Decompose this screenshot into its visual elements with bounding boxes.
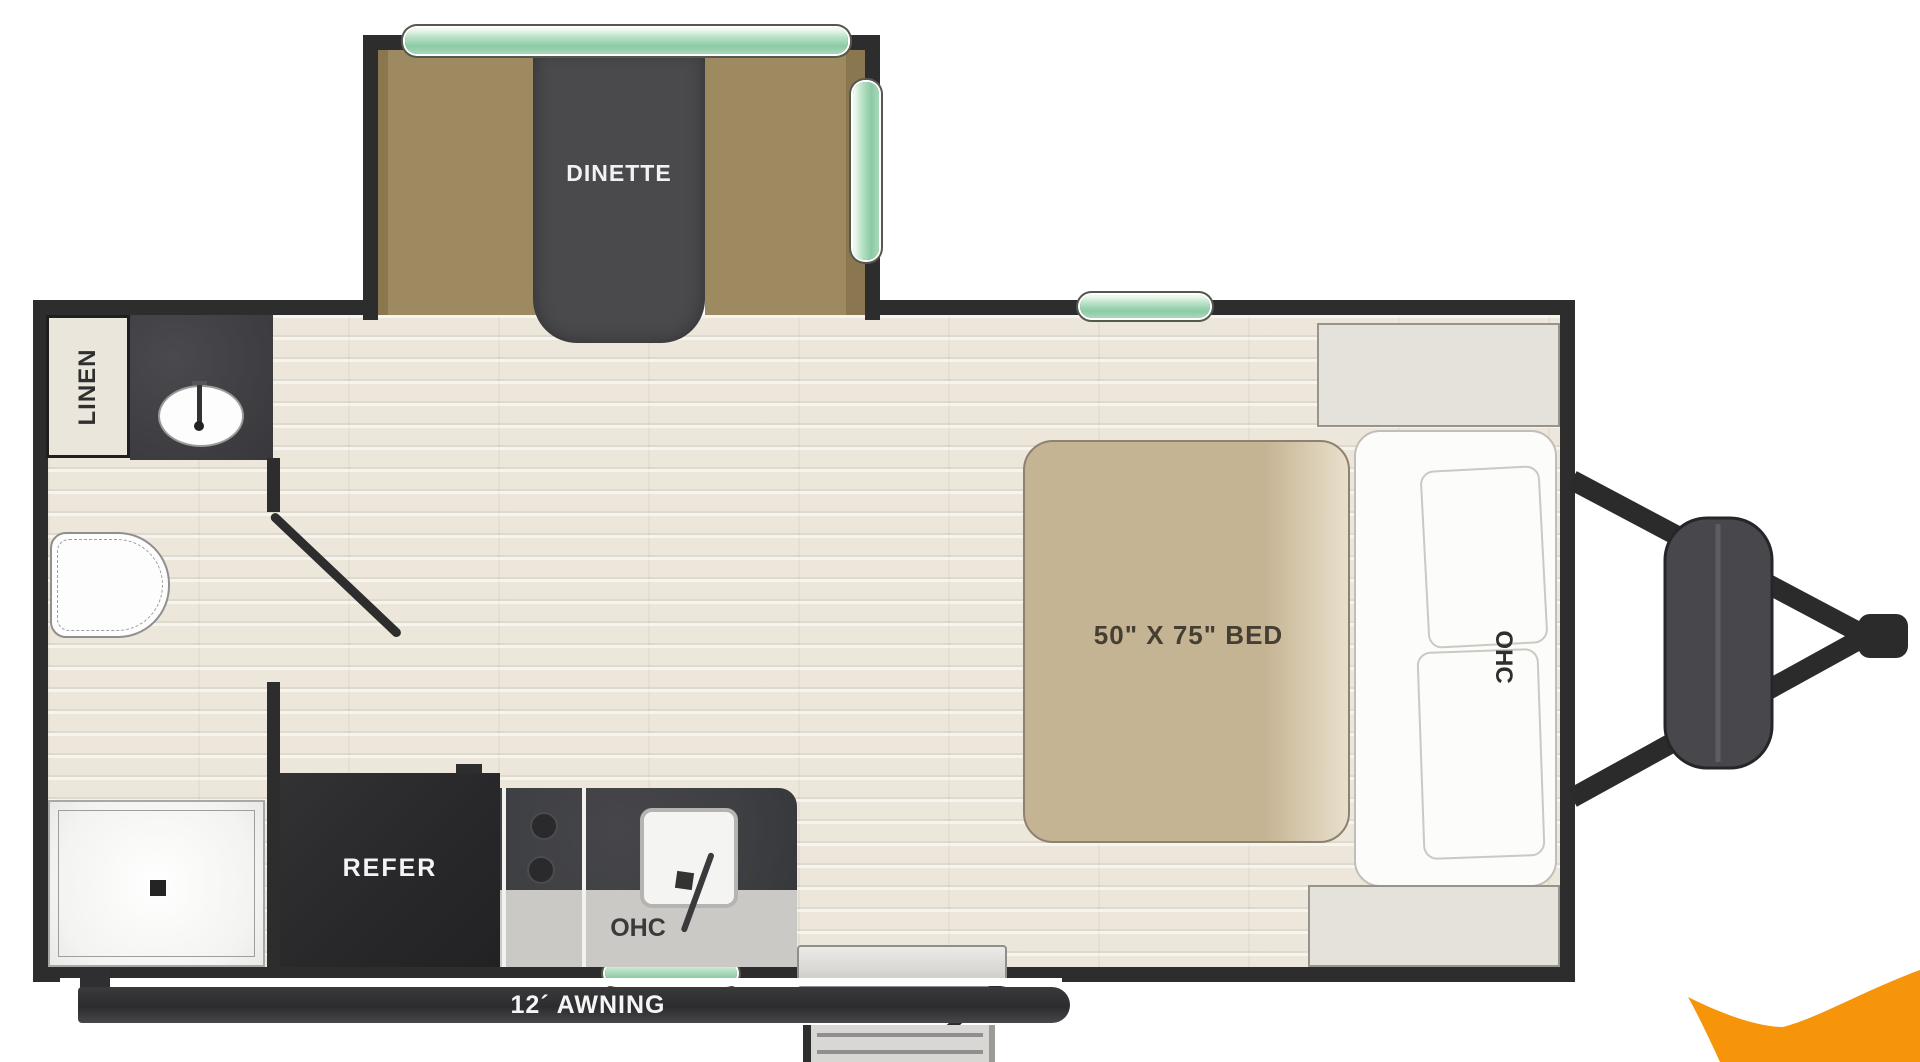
bedroom-ohc-panel: OHC	[1354, 430, 1557, 887]
dinette-slideout: DINETTE	[363, 30, 880, 320]
wall-bottom-right	[1003, 967, 1575, 982]
wall-top-right	[865, 300, 1575, 315]
bedroom-window-icon	[1080, 295, 1210, 318]
bath-wall-stub	[267, 458, 280, 512]
bed: 50" X 75" BED	[1023, 440, 1350, 843]
hitch-assembly-icon	[1560, 430, 1920, 830]
awning-label: 12´ AWNING	[478, 991, 698, 1019]
front-storage-box	[1317, 323, 1560, 427]
toilet-rim-icon	[57, 539, 163, 631]
bedroom-ohc-label: OHC	[1460, 622, 1546, 692]
awning-rail-highlight	[60, 978, 1062, 986]
step-line-1	[817, 1033, 983, 1037]
vanity-drain-icon	[194, 421, 204, 431]
dinette-bench-left	[378, 50, 548, 315]
awning-bar: 12´ AWNING	[78, 987, 1070, 1023]
shower-pan	[48, 800, 265, 967]
kitchen-ohc-label: OHC	[600, 914, 676, 942]
dinette-bench-right	[705, 50, 865, 315]
counter-divider-mid-icon	[582, 788, 586, 967]
counter-divider-left-icon	[502, 788, 506, 967]
kitchen-sink-icon	[640, 808, 738, 908]
wall-top-left	[33, 300, 375, 315]
brand-swoosh-icon	[1680, 950, 1920, 1062]
toilet-icon	[50, 532, 170, 638]
dinette-window-right-icon	[853, 82, 879, 260]
shower-drain-icon	[150, 880, 166, 896]
linen-label: LINEN	[75, 316, 101, 458]
dinette-label: DINETTE	[533, 158, 705, 188]
refer-label: REFER	[280, 853, 500, 883]
kitchen-counter: OHC	[500, 788, 797, 967]
burner-2-icon	[529, 858, 553, 882]
refrigerator-vent-icon	[456, 764, 482, 774]
bath-kitchen-wall	[267, 682, 280, 967]
vanity-faucet-base-icon	[192, 381, 207, 385]
step-line-2	[817, 1050, 983, 1054]
refrigerator: REFER	[280, 773, 500, 967]
foot-storage-box	[1308, 885, 1560, 967]
floorplan-canvas: DINETTE LINEN REFER	[0, 0, 1920, 1062]
entry-steps-icon	[803, 1025, 995, 1062]
linen-closet: LINEN	[46, 315, 130, 458]
bed-label: 50" X 75" BED	[1025, 620, 1352, 650]
dinette-table	[533, 50, 705, 343]
kitchen-drain-icon	[675, 871, 694, 890]
vanity-faucet-icon	[197, 384, 202, 424]
dinette-window-top-icon	[405, 28, 848, 54]
burner-1-icon	[532, 814, 556, 838]
slideout-wall-left	[363, 35, 378, 320]
